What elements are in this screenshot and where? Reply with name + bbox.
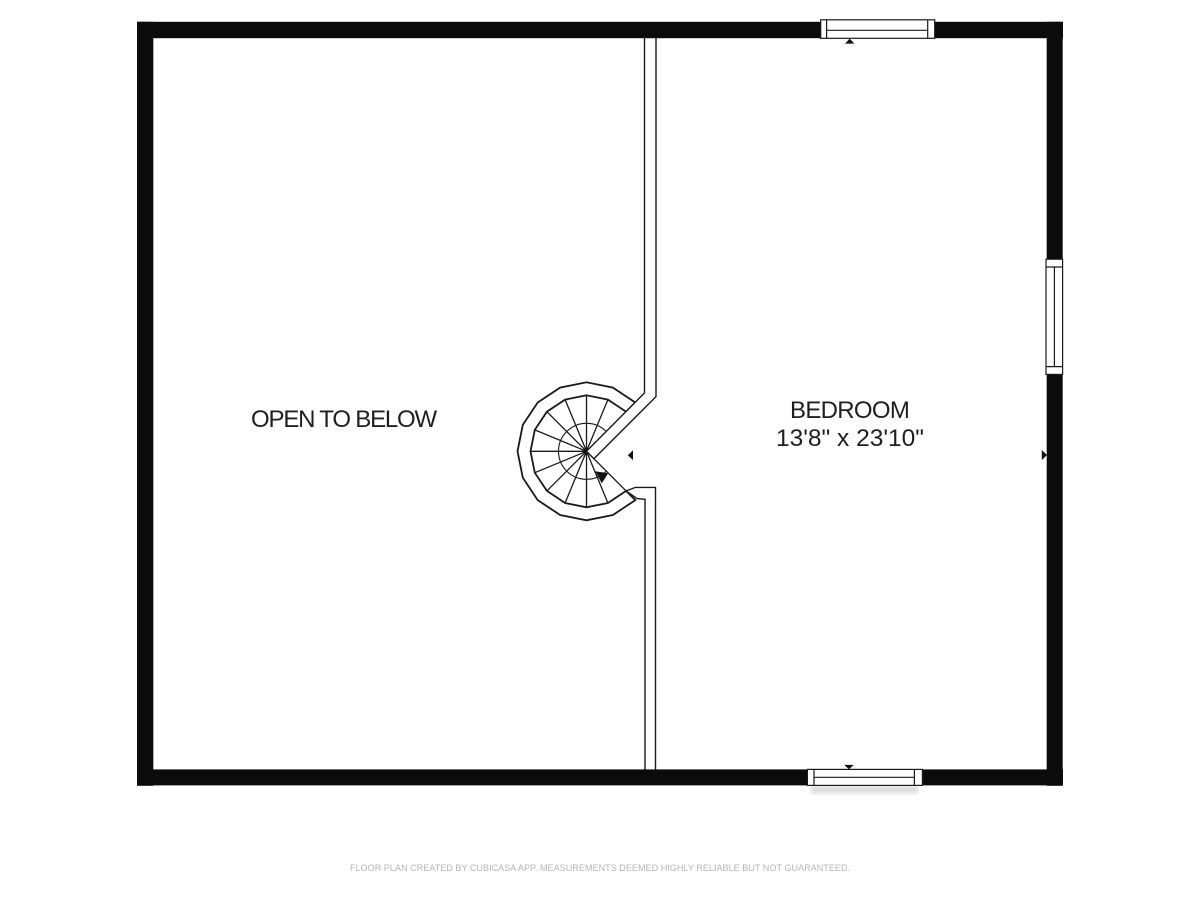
svg-text:13'8" x 23'10": 13'8" x 23'10"	[776, 425, 924, 452]
svg-text:FLOOR PLAN CREATED BY CUBICASA: FLOOR PLAN CREATED BY CUBICASA APP. MEAS…	[350, 863, 850, 873]
svg-text:BEDROOM: BEDROOM	[790, 397, 909, 424]
svg-text:OPEN TO BELOW: OPEN TO BELOW	[251, 406, 437, 433]
